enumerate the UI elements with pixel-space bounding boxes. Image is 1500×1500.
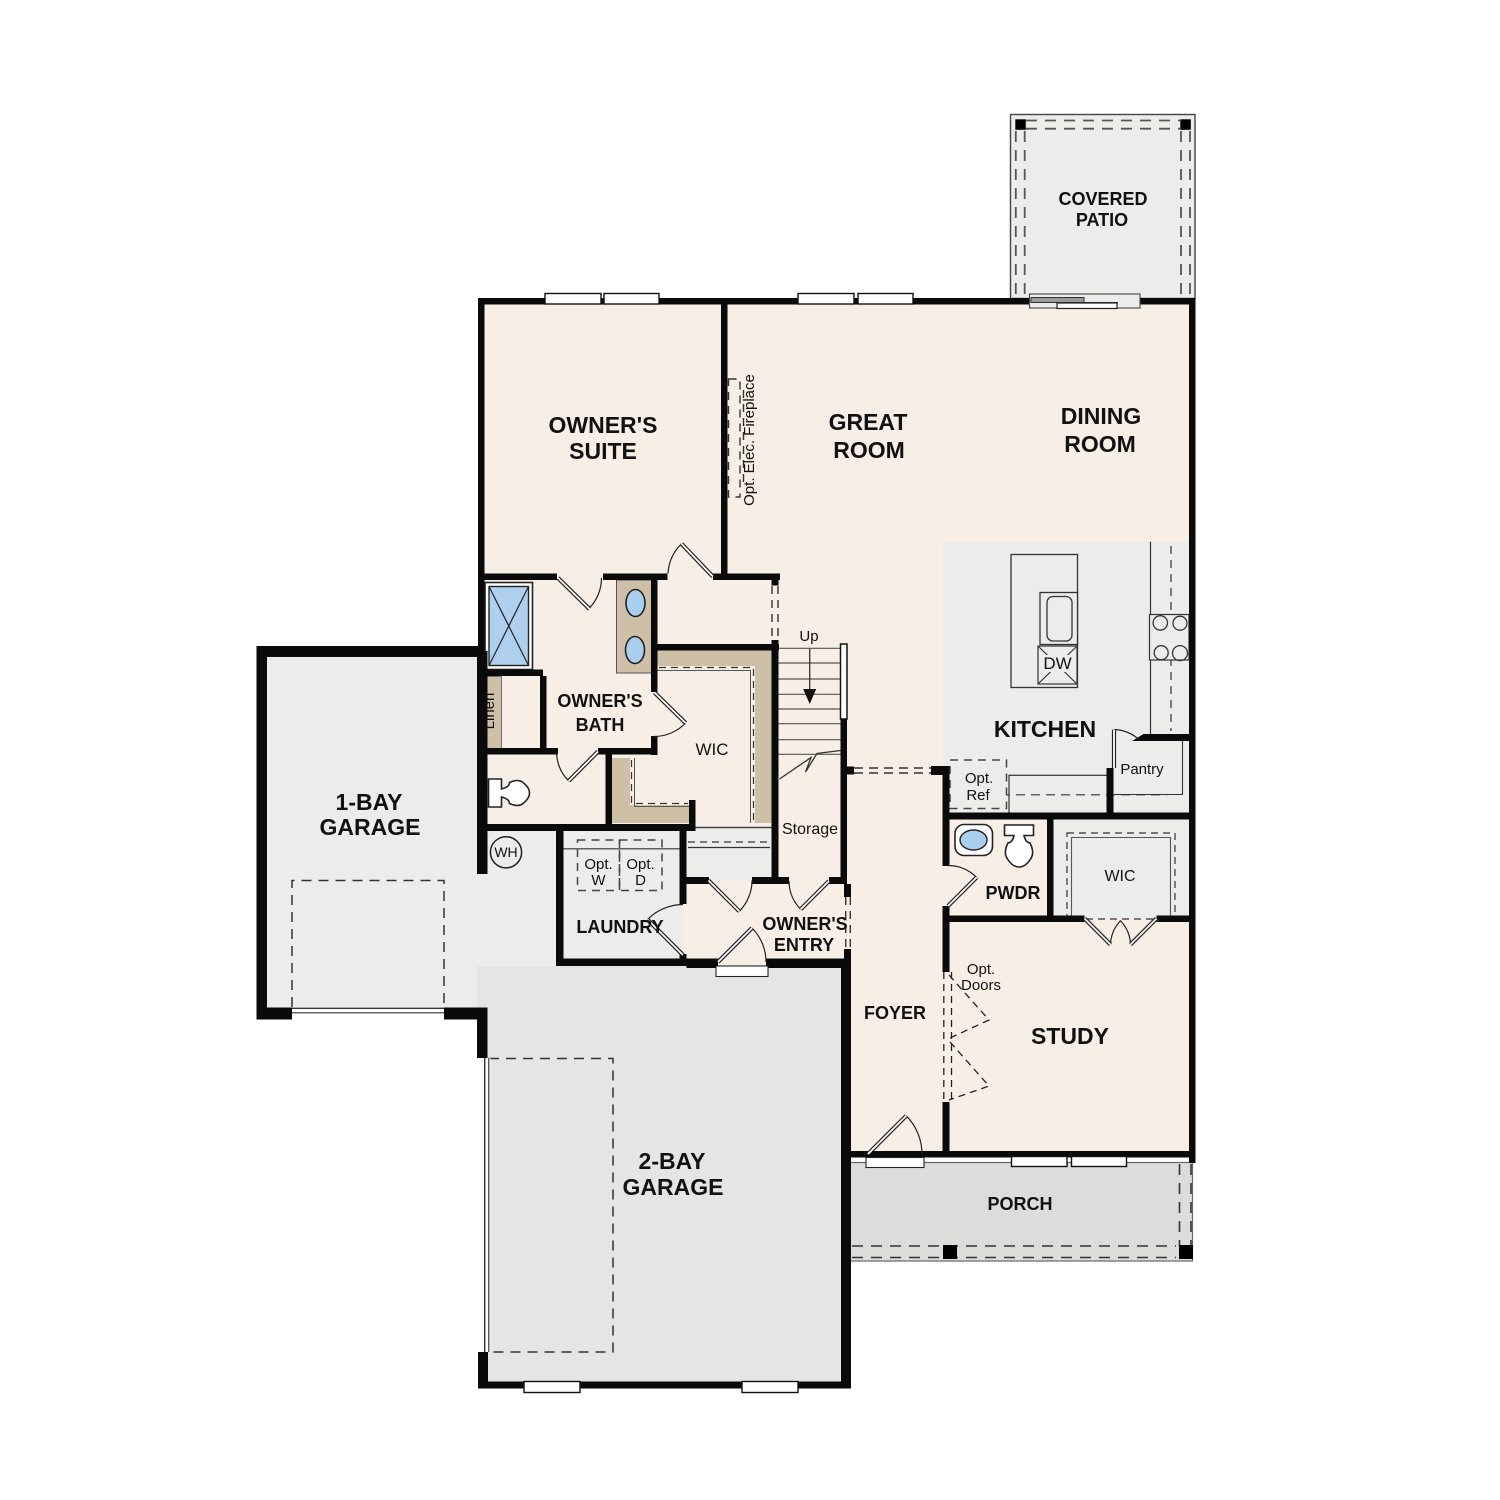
svg-text:PATIO: PATIO — [1076, 210, 1128, 230]
svg-text:SUITE: SUITE — [569, 438, 637, 464]
svg-text:WIC: WIC — [695, 740, 728, 759]
svg-text:PWDR: PWDR — [986, 883, 1041, 903]
svg-text:GREAT: GREAT — [829, 409, 908, 435]
svg-text:DW: DW — [1043, 654, 1071, 673]
svg-text:Opt.: Opt. — [967, 961, 995, 978]
svg-text:PORCH: PORCH — [987, 1194, 1052, 1214]
svg-text:Storage: Storage — [782, 821, 838, 838]
svg-text:ROOM: ROOM — [833, 437, 905, 463]
svg-text:OWNER'S: OWNER'S — [762, 914, 847, 934]
svg-text:Opt.: Opt. — [626, 856, 654, 873]
svg-text:COVERED: COVERED — [1058, 189, 1147, 209]
svg-text:GARAGE: GARAGE — [320, 814, 421, 840]
svg-text:1-BAY: 1-BAY — [336, 789, 403, 815]
svg-text:OWNER'S: OWNER'S — [557, 691, 642, 711]
svg-text:WH: WH — [494, 844, 517, 860]
svg-text:Opt. Elec. Fireplace: Opt. Elec. Fireplace — [741, 374, 758, 506]
svg-text:W: W — [591, 872, 606, 889]
svg-text:D: D — [635, 872, 646, 889]
svg-text:DINING: DINING — [1061, 403, 1142, 429]
svg-text:STUDY: STUDY — [1031, 1023, 1109, 1049]
svg-text:OWNER'S: OWNER'S — [549, 412, 658, 438]
svg-text:FOYER: FOYER — [864, 1003, 926, 1023]
svg-text:Doors: Doors — [961, 977, 1001, 994]
svg-text:KITCHEN: KITCHEN — [994, 716, 1096, 742]
svg-text:BATH: BATH — [576, 715, 625, 735]
svg-text:Up: Up — [799, 628, 818, 645]
svg-text:ENTRY: ENTRY — [774, 935, 834, 955]
svg-text:Opt.: Opt. — [584, 856, 612, 873]
svg-text:Linen: Linen — [481, 693, 498, 730]
svg-text:2-BAY: 2-BAY — [639, 1148, 706, 1174]
svg-text:Ref: Ref — [966, 787, 990, 804]
svg-text:WIC: WIC — [1104, 868, 1135, 885]
svg-text:ROOM: ROOM — [1064, 431, 1136, 457]
svg-text:Opt.: Opt. — [965, 770, 993, 787]
svg-text:Pantry: Pantry — [1120, 761, 1164, 778]
svg-text:LAUNDRY: LAUNDRY — [576, 917, 663, 937]
svg-text:GARAGE: GARAGE — [623, 1174, 724, 1200]
